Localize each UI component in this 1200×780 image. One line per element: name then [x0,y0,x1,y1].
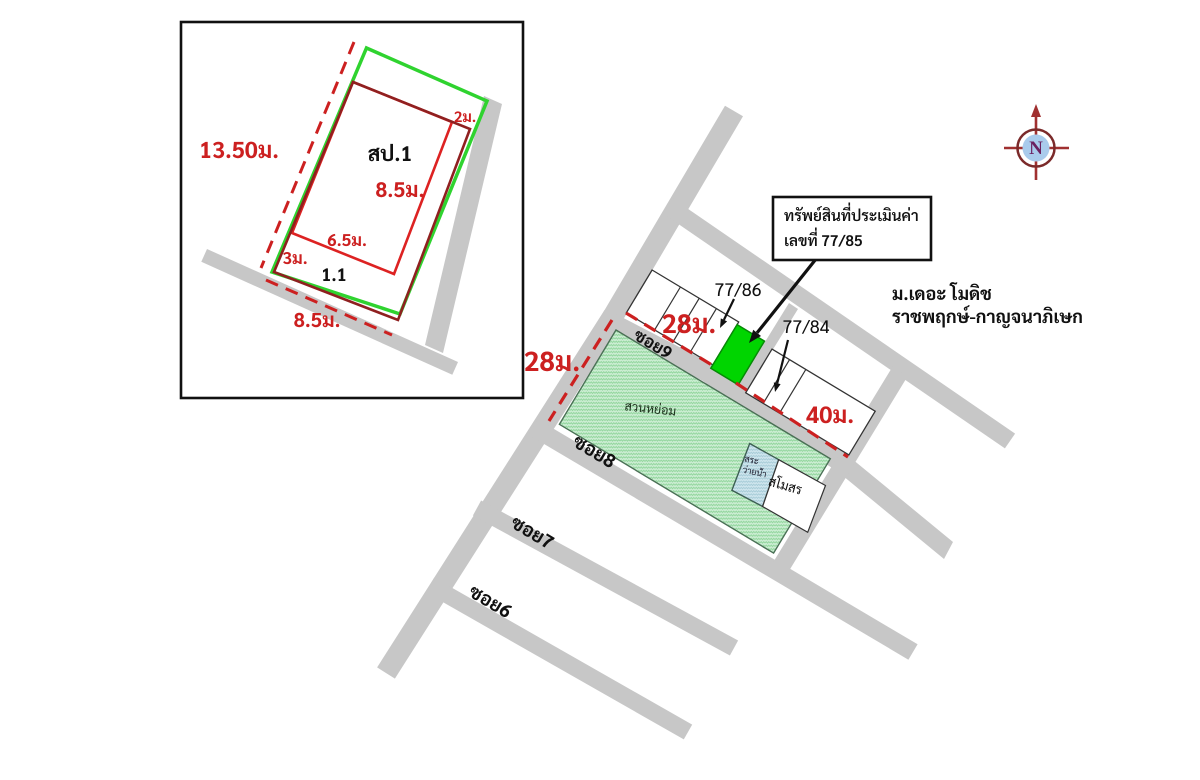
svg-text:N: N [1029,138,1043,159]
